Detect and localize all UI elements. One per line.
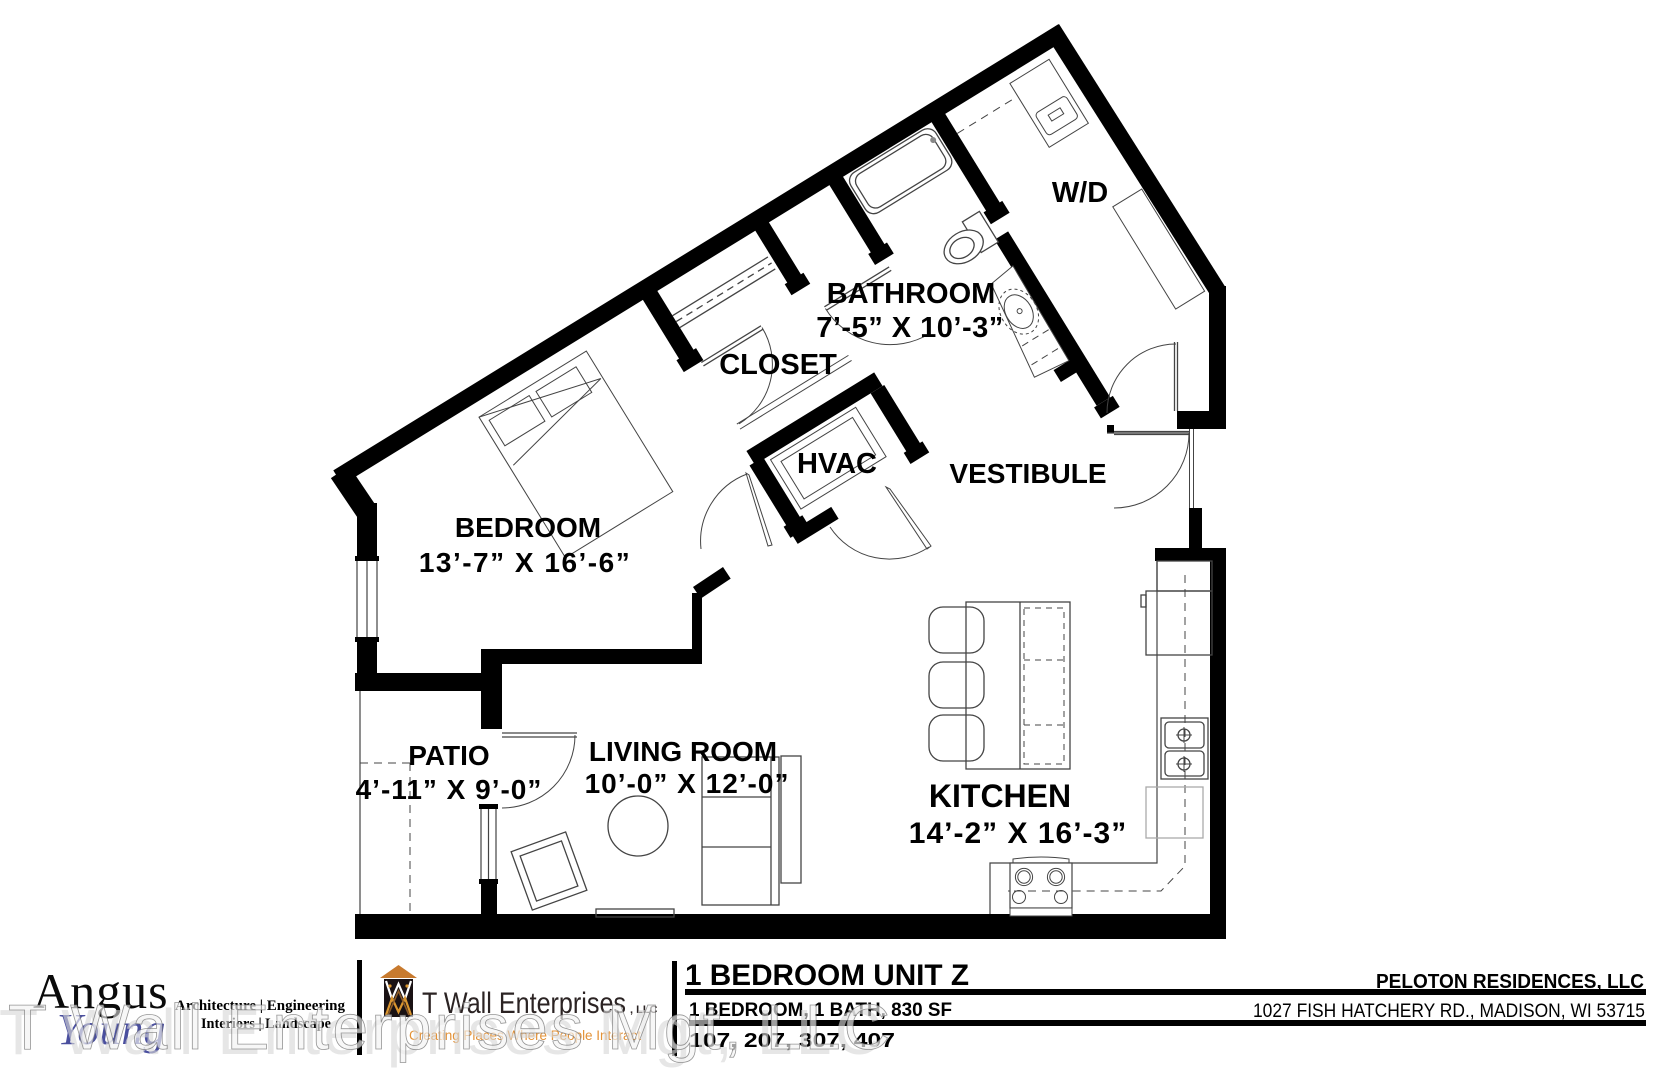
svg-text:KITCHEN: KITCHEN bbox=[929, 778, 1071, 814]
svg-text:10’-0” X 12’-0”: 10’-0” X 12’-0” bbox=[585, 768, 790, 799]
svg-text:LIVING ROOM: LIVING ROOM bbox=[589, 736, 777, 767]
svg-text:7’-5” X 10’-3”: 7’-5” X 10’-3” bbox=[816, 312, 1004, 344]
svg-text:13’-7” X 16’-6”: 13’-7” X 16’-6” bbox=[419, 547, 631, 578]
svg-text:14’-2” X 16’-3”: 14’-2” X 16’-3” bbox=[909, 817, 1127, 850]
svg-text:BEDROOM: BEDROOM bbox=[455, 512, 601, 543]
svg-text:1027 FISH HATCHERY RD., MADISO: 1027 FISH HATCHERY RD., MADISON, WI 5371… bbox=[1253, 1001, 1645, 1022]
svg-text:4’-11” X 9’-0”: 4’-11” X 9’-0” bbox=[356, 774, 543, 805]
svg-text:1 BEDROOM UNIT Z: 1 BEDROOM UNIT Z bbox=[685, 959, 969, 992]
svg-text:W/D: W/D bbox=[1052, 177, 1108, 209]
svg-text:PATIO: PATIO bbox=[408, 740, 489, 771]
svg-text:T Wall Enterprises Mgt, LLC: T Wall Enterprises Mgt, LLC bbox=[8, 991, 890, 1063]
svg-text:CLOSET: CLOSET bbox=[719, 349, 837, 381]
svg-text:HVAC: HVAC bbox=[797, 448, 877, 480]
svg-text:PELOTON RESIDENCES, LLC: PELOTON RESIDENCES, LLC bbox=[1376, 971, 1644, 993]
svg-text:VESTIBULE: VESTIBULE bbox=[949, 458, 1106, 489]
svg-text:BATHROOM: BATHROOM bbox=[827, 278, 996, 310]
